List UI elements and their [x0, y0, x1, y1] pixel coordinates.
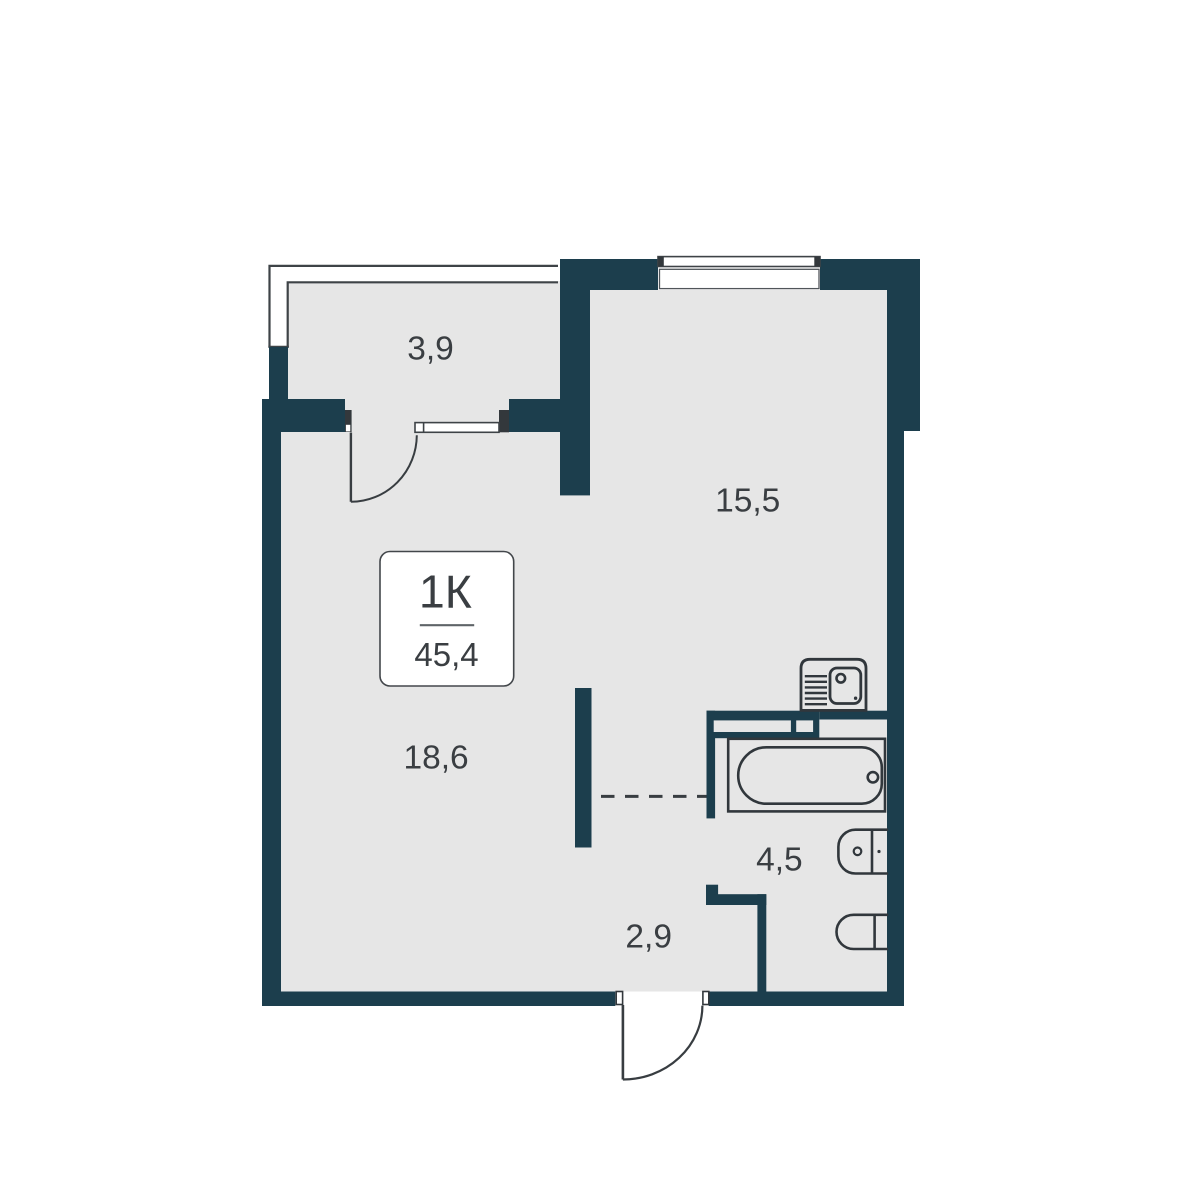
svg-text:15,5: 15,5: [715, 482, 780, 519]
svg-text:45,4: 45,4: [414, 636, 478, 673]
svg-text:2,9: 2,9: [625, 919, 672, 956]
svg-text:18,6: 18,6: [403, 739, 468, 776]
svg-text:4,5: 4,5: [756, 842, 803, 879]
svg-text:1К: 1К: [419, 566, 472, 618]
svg-text:3,9: 3,9: [407, 331, 454, 368]
